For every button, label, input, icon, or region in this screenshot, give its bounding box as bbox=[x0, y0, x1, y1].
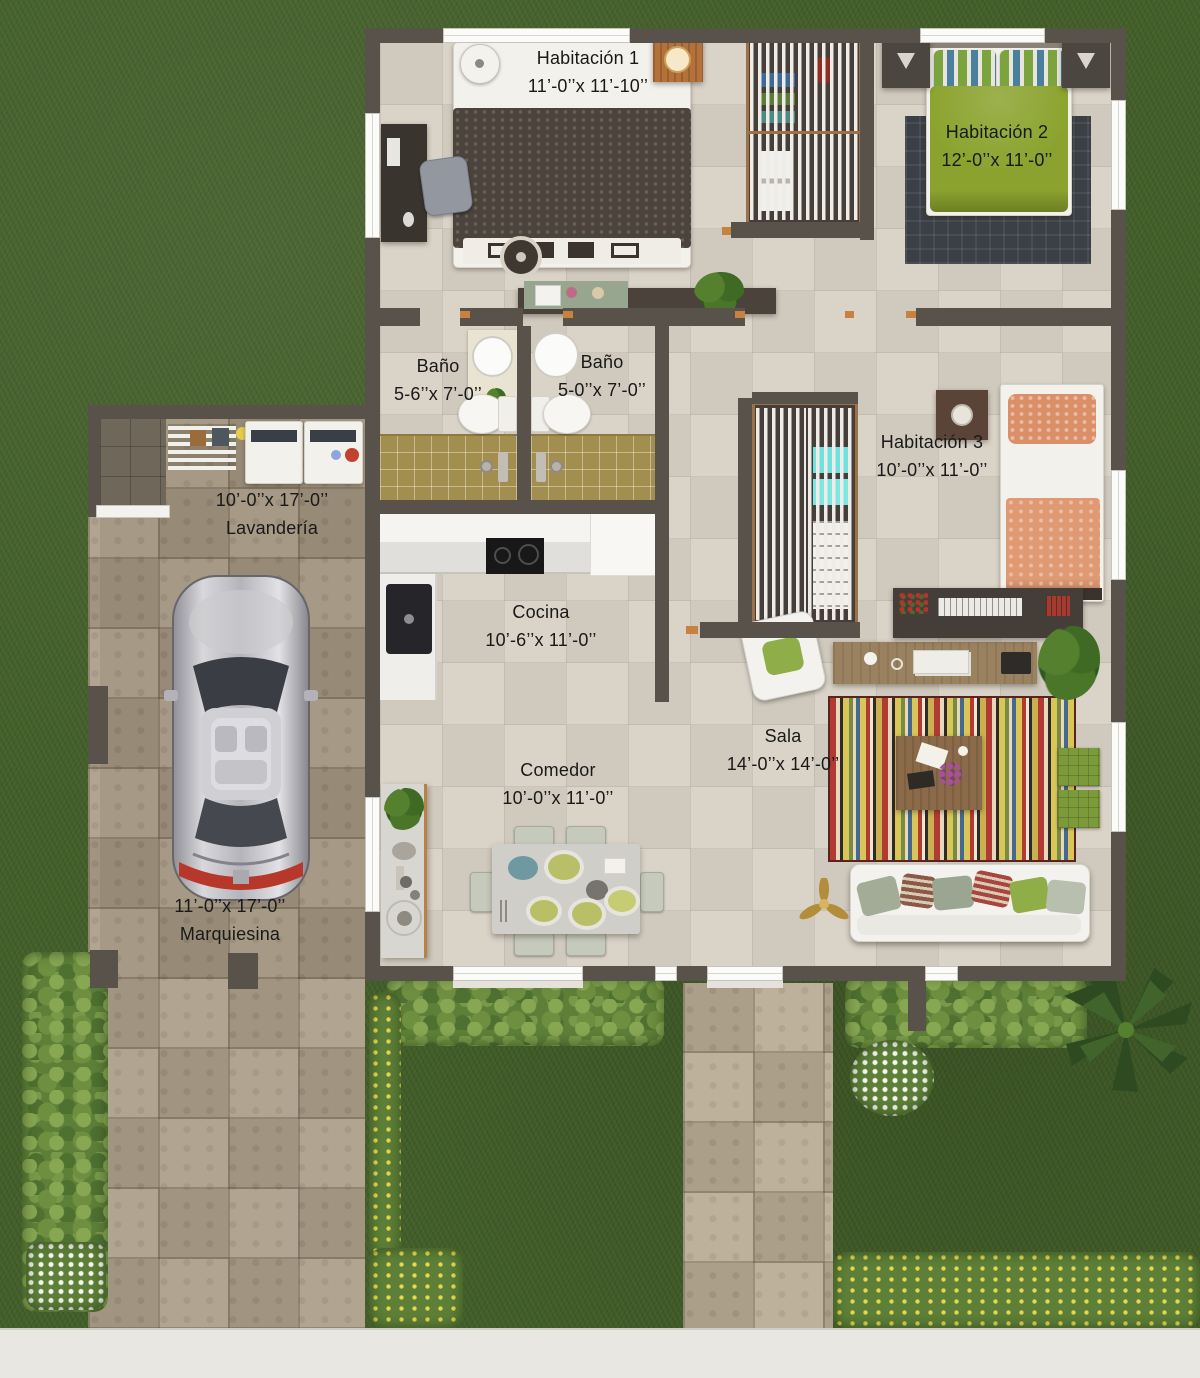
carport-post-left bbox=[88, 686, 108, 764]
plate-olive-2 bbox=[568, 898, 606, 930]
closet2-bottom-wall bbox=[700, 622, 860, 638]
rack-board bbox=[190, 430, 206, 446]
hall-wall-c bbox=[563, 308, 745, 326]
hab1-round-cushion bbox=[500, 236, 542, 278]
patio-door-comedor bbox=[453, 966, 583, 981]
closet1-bottom-wall bbox=[731, 222, 860, 238]
hab1-desk-chair bbox=[418, 155, 473, 217]
white-flower-bush bbox=[850, 1040, 934, 1116]
flower-hedge-bottom-right bbox=[833, 1252, 1200, 1328]
ottoman-2 bbox=[1058, 790, 1100, 828]
napkin bbox=[604, 858, 626, 874]
window-hab1-left bbox=[365, 113, 380, 238]
table-book bbox=[907, 770, 935, 789]
closet2-top-stub bbox=[752, 392, 858, 404]
table-dot bbox=[958, 746, 968, 756]
console-bowl-2 bbox=[410, 890, 420, 900]
fold-pattern bbox=[568, 242, 594, 258]
studio-desk bbox=[833, 642, 1037, 684]
hab2-lamp-right bbox=[1077, 53, 1095, 69]
porch-step-1 bbox=[453, 981, 583, 988]
room-name: Comedor bbox=[502, 756, 613, 784]
window-hab3-right bbox=[1111, 470, 1126, 580]
threshold-4 bbox=[845, 311, 854, 318]
room-dims: 10’-0’’x 11’-0’’ bbox=[502, 784, 613, 812]
dryer-knob-blue bbox=[331, 450, 341, 460]
dryer bbox=[304, 421, 363, 484]
hab1-desk bbox=[381, 124, 427, 242]
bath2-shower-drain bbox=[550, 460, 563, 473]
console-bowl-1 bbox=[400, 876, 412, 888]
rack-box bbox=[212, 428, 229, 446]
sofa-pillow-sage-2 bbox=[931, 875, 974, 911]
carport-post-bottom-left bbox=[90, 950, 118, 988]
dining-chair-bottom-2 bbox=[566, 932, 606, 956]
hab3-pillow bbox=[1008, 394, 1096, 444]
plate-olive-3 bbox=[604, 886, 640, 916]
room-name: Cocina bbox=[485, 598, 596, 626]
console-books-red bbox=[1046, 596, 1070, 616]
utility-closet bbox=[100, 419, 166, 507]
label-habitacion2: Habitación 2 12’-0’’x 11’-0’’ bbox=[941, 118, 1052, 174]
cushion-center bbox=[516, 252, 526, 262]
threshold-5 bbox=[906, 311, 916, 318]
hab2-lamp-left bbox=[897, 53, 915, 69]
plate-olive-1 bbox=[526, 896, 562, 926]
floor-plan: Habitación 1 11’-0’’x 11’-10’’ Habitació… bbox=[0, 0, 1200, 1378]
threshold-7 bbox=[722, 227, 731, 235]
room-name: Baño bbox=[394, 352, 482, 380]
window-comedor-left bbox=[365, 797, 380, 912]
hedgerow-right bbox=[845, 976, 1087, 1048]
room-dims: 5-6’’x 7’-0’’ bbox=[394, 380, 482, 408]
hab3-lamp bbox=[951, 404, 973, 426]
stove-burner-2 bbox=[518, 544, 539, 565]
door-gap-1 bbox=[655, 966, 677, 981]
flower-hedge-bottom-left bbox=[369, 1248, 463, 1328]
bath1-shower-fixture bbox=[498, 452, 508, 482]
window-sala-right bbox=[1111, 722, 1126, 832]
closet1-shelf-line bbox=[749, 131, 859, 134]
desk-mouse bbox=[403, 212, 414, 227]
room-dims: 10’-6’’x 11’-0’’ bbox=[485, 626, 596, 654]
annex-top-wall bbox=[88, 405, 365, 419]
room-name: Habitación 1 bbox=[528, 44, 648, 72]
hab2-nightstand-left bbox=[882, 38, 930, 88]
room-name: Marquiesina bbox=[174, 920, 285, 948]
room-dims: 5-0’’x 7’-0’’ bbox=[558, 376, 646, 404]
window-hab1-top bbox=[443, 28, 630, 43]
bath2-shower-fixture bbox=[536, 452, 546, 482]
sofa-pillow-green bbox=[1009, 876, 1052, 914]
porch-step-2 bbox=[707, 981, 783, 988]
console-books-white bbox=[938, 598, 1022, 616]
car bbox=[163, 570, 319, 906]
room-dims: 10’-0’’x 11’-0’’ bbox=[876, 456, 987, 484]
kitchen-sink bbox=[386, 584, 432, 654]
label-comedor: Comedor 10’-0’’x 11’-0’’ bbox=[502, 756, 613, 812]
tray-bowl bbox=[397, 911, 412, 926]
label-bano2: Baño 5-0’’x 7’-0’’ bbox=[558, 348, 646, 404]
room-name: Baño bbox=[558, 348, 646, 376]
armchair-cushion bbox=[761, 635, 805, 676]
console-tray bbox=[386, 900, 422, 936]
hab3-side-wall bbox=[738, 398, 752, 630]
desk-ring bbox=[891, 658, 903, 670]
hall-console-dish bbox=[592, 287, 604, 299]
door-gap-2 bbox=[925, 966, 958, 981]
palm-plant bbox=[1054, 966, 1198, 1094]
window-hab2-right bbox=[1111, 100, 1126, 210]
hab1-nightstand bbox=[653, 38, 703, 82]
sink-faucet bbox=[404, 614, 414, 624]
sidewalk bbox=[0, 1328, 1200, 1378]
ottoman-1 bbox=[1058, 748, 1100, 786]
sofa-pillow-sage-1 bbox=[855, 875, 902, 918]
table-flowers bbox=[938, 762, 962, 786]
fold-pattern bbox=[611, 243, 639, 258]
desk-cup bbox=[864, 652, 877, 665]
room-dims: 11’-0’’x 17’-0’’ bbox=[174, 892, 285, 920]
bath1-toilet-tank bbox=[498, 396, 517, 432]
kitchen-side-wall bbox=[655, 326, 669, 702]
dining-table bbox=[492, 844, 640, 934]
closet2-louver-right bbox=[808, 408, 855, 620]
main-entrance-door bbox=[707, 966, 783, 981]
room-name: Lavandería bbox=[216, 514, 329, 542]
hab1-duvet bbox=[453, 108, 691, 248]
plate-teal bbox=[508, 856, 538, 880]
closet2-louver-left bbox=[756, 408, 806, 620]
hab2-nightstand-right bbox=[1062, 38, 1110, 88]
room-name: Sala bbox=[727, 722, 840, 750]
bath-bottom-wall bbox=[365, 500, 669, 514]
cutlery bbox=[500, 900, 502, 922]
label-sala: Sala 14’-0’’x 14’-0’’ bbox=[727, 722, 840, 778]
room-dims: 10’-0’’x 17’-0’’ bbox=[216, 486, 329, 514]
ceiling-fan bbox=[798, 878, 850, 930]
washer bbox=[245, 421, 303, 484]
closet1-right-wall bbox=[860, 28, 874, 240]
washer-panel bbox=[251, 430, 297, 442]
label-lavanderia: 10’-0’’x 17’-0’’ Lavandería bbox=[216, 486, 329, 542]
hall-wall-d bbox=[916, 308, 1126, 326]
threshold-2 bbox=[563, 311, 573, 318]
window-hab2-top bbox=[920, 28, 1045, 43]
bath1-shower-floor bbox=[380, 434, 517, 504]
closet2 bbox=[752, 402, 858, 626]
sofa-pillow-stripe-red bbox=[970, 869, 1014, 908]
hall-console-flower bbox=[566, 287, 577, 298]
room-name: Habitación 3 bbox=[876, 428, 987, 456]
threshold-3 bbox=[735, 311, 745, 318]
label-marquesina: 11’-0’’x 17’-0’’ Marquiesina bbox=[174, 892, 285, 948]
driveway-edge-hedge bbox=[369, 992, 401, 1258]
coffee-table bbox=[896, 736, 982, 810]
hab3-blanket bbox=[1006, 498, 1100, 592]
console-stone bbox=[392, 842, 416, 860]
label-bano1: Baño 5-6’’x 7’-0’’ bbox=[394, 352, 482, 408]
plate-olive-large bbox=[544, 850, 584, 884]
lamp-center bbox=[475, 59, 484, 68]
room-dims: 12’-0’’x 11’-0’’ bbox=[941, 146, 1052, 174]
stove-burner-1 bbox=[494, 547, 511, 564]
dining-chair-bottom-1 bbox=[514, 932, 554, 956]
closet1 bbox=[746, 36, 862, 226]
kitchen-stove bbox=[486, 538, 544, 574]
threshold-6 bbox=[686, 626, 698, 634]
hab1-round-lamp bbox=[460, 44, 500, 84]
room-name: Habitación 2 bbox=[941, 118, 1052, 146]
threshold-1 bbox=[460, 311, 470, 318]
desk-tablet bbox=[1001, 652, 1031, 674]
sofa bbox=[850, 864, 1090, 942]
left-hedge-flowers bbox=[26, 1242, 106, 1310]
dining-chair-left bbox=[470, 872, 494, 912]
hab1-table-lamp bbox=[664, 46, 691, 73]
porch-wall-stub bbox=[908, 981, 926, 1031]
sofa-seat bbox=[857, 915, 1081, 935]
room-dims: 11’-0’’x 11’-10’’ bbox=[528, 72, 648, 100]
sofa-pillow-stripe-brown bbox=[899, 873, 937, 909]
desk-paper bbox=[387, 138, 400, 166]
sofa-pillow-sage-3 bbox=[1045, 879, 1086, 915]
console-flowers bbox=[898, 592, 928, 614]
hab1-sheet-fold bbox=[463, 238, 681, 264]
dining-chair-right bbox=[640, 872, 664, 912]
label-cocina: Cocina 10’-6’’x 11’-0’’ bbox=[485, 598, 596, 654]
label-habitacion3: Habitación 3 10’-0’’x 11’-0’’ bbox=[876, 428, 987, 484]
bath1-shower-drain bbox=[480, 460, 493, 473]
kitchen-fridge bbox=[590, 512, 656, 576]
garden-path bbox=[683, 983, 833, 1328]
room-dims: 14’-0’’x 14’-0’’ bbox=[727, 750, 840, 778]
dryer-panel bbox=[310, 430, 356, 442]
hall-console-book bbox=[535, 285, 561, 306]
label-habitacion1: Habitación 1 11’-0’’x 11’-10’’ bbox=[528, 44, 648, 100]
dryer-knob-red bbox=[345, 448, 359, 462]
desk-papers bbox=[913, 650, 969, 674]
bath-divider-wall bbox=[517, 326, 531, 508]
laundry-shelf bbox=[96, 505, 170, 518]
carport-post-bottom-mid bbox=[228, 953, 258, 989]
